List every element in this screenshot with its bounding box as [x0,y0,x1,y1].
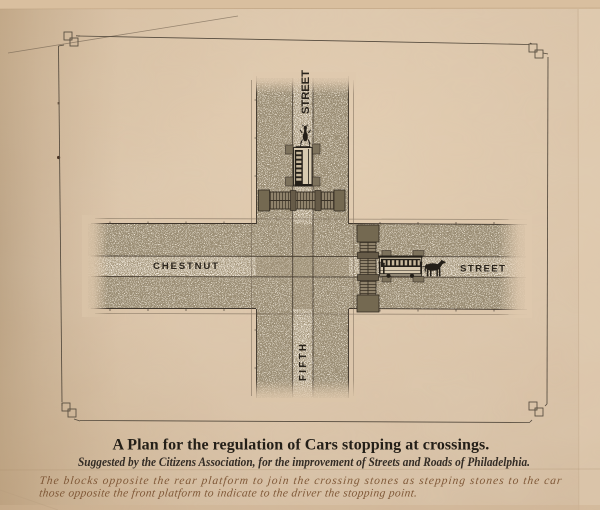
svg-text:FIFTH: FIFTH [298,344,309,381]
svg-text:Suggested by the Citizens Asso: Suggested by the Citizens Association, f… [78,455,530,469]
svg-text:those opposite the front platf: those opposite the front platform to ind… [39,488,418,500]
svg-text:STREET: STREET [300,70,312,114]
svg-text:A Plan for the regulation of C: A Plan for the regulation of Cars stoppi… [113,437,490,454]
svg-text:The blocks opposite the rear p: The blocks opposite the rear platform to… [39,475,563,487]
